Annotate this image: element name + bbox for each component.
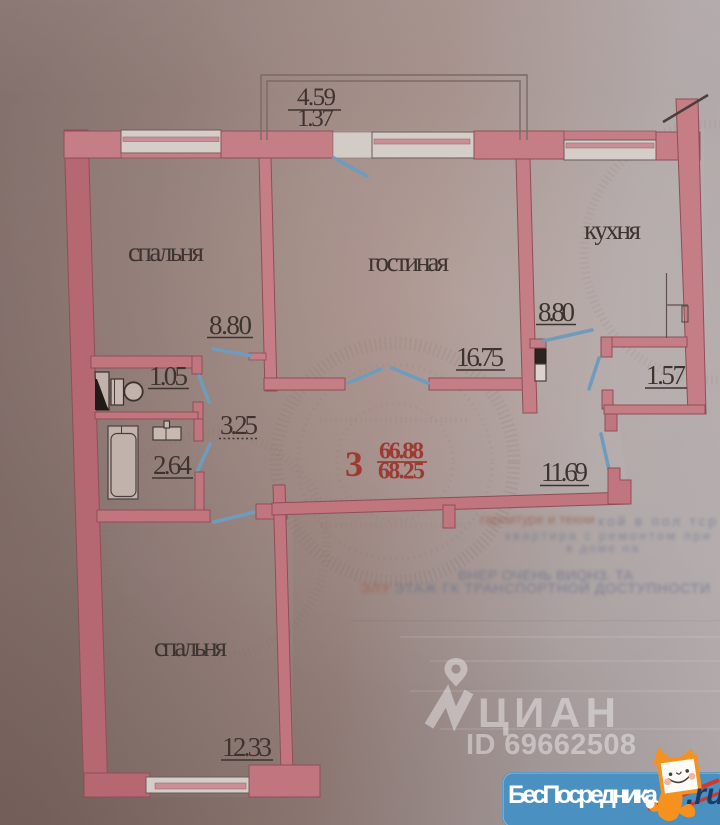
svg-text:в доме на: в доме на [566,541,638,555]
svg-text:68.25: 68.25 [378,459,425,485]
svg-text:1.05: 1.05 [149,361,188,391]
svg-text:.ru: .ru [686,778,720,811]
svg-text:ЭЛУ: ЭЛУ [360,580,390,596]
svg-text:гарнитуре и техни: гарнитуре и техни [480,511,595,527]
svg-text:ЭТАЖ ГК ТРАНСПОРТНОЙ ДОСТУПНОС: ЭТАЖ ГК ТРАНСПОРТНОЙ ДОСТУПНОСТИ [394,579,710,596]
svg-text:2.64: 2.64 [153,450,193,480]
svg-text:кой в пол тср: кой в пол тср [598,513,716,529]
svg-text:3: 3 [345,444,363,484]
svg-text:1.37: 1.37 [297,105,334,132]
svg-text:1.57: 1.57 [646,360,686,390]
svg-text:спальня: спальня [154,632,227,662]
svg-text:ID 69662508: ID 69662508 [466,729,636,761]
svg-text:12.33: 12.33 [222,732,272,762]
svg-text:16.75: 16.75 [456,342,504,372]
svg-text:спальня: спальня [128,237,204,267]
svg-text:3.25: 3.25 [220,410,258,440]
svg-text:8.80: 8.80 [538,297,575,327]
svg-text:БесПосредника: БесПосредника [508,781,659,809]
svg-text:гостиная: гостиная [368,247,449,277]
svg-text:кухня: кухня [584,215,641,245]
svg-text:8.80: 8.80 [209,310,252,340]
svg-text:11.69: 11.69 [541,457,588,487]
